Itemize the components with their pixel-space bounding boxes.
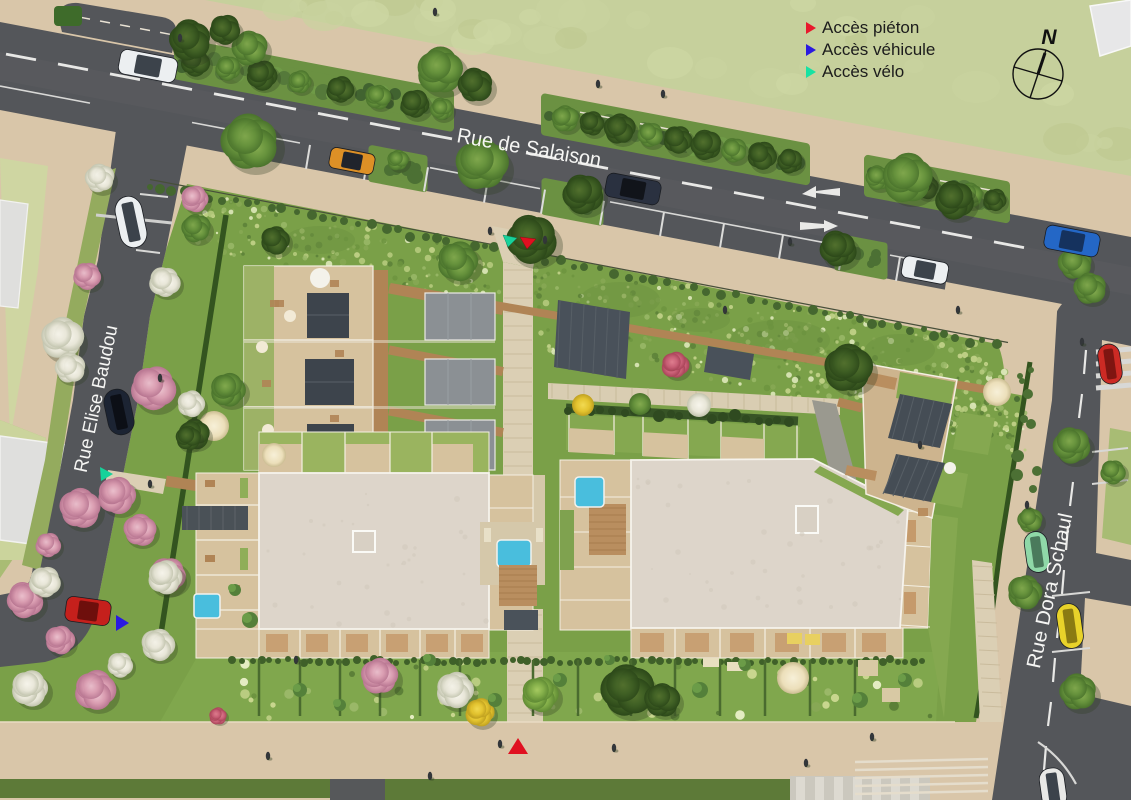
svg-text:Accès piéton: Accès piéton bbox=[822, 18, 919, 37]
svg-text:N: N bbox=[1041, 26, 1057, 49]
svg-text:Accès vélo: Accès vélo bbox=[822, 62, 904, 81]
svg-text:Accès véhicule: Accès véhicule bbox=[822, 40, 935, 59]
